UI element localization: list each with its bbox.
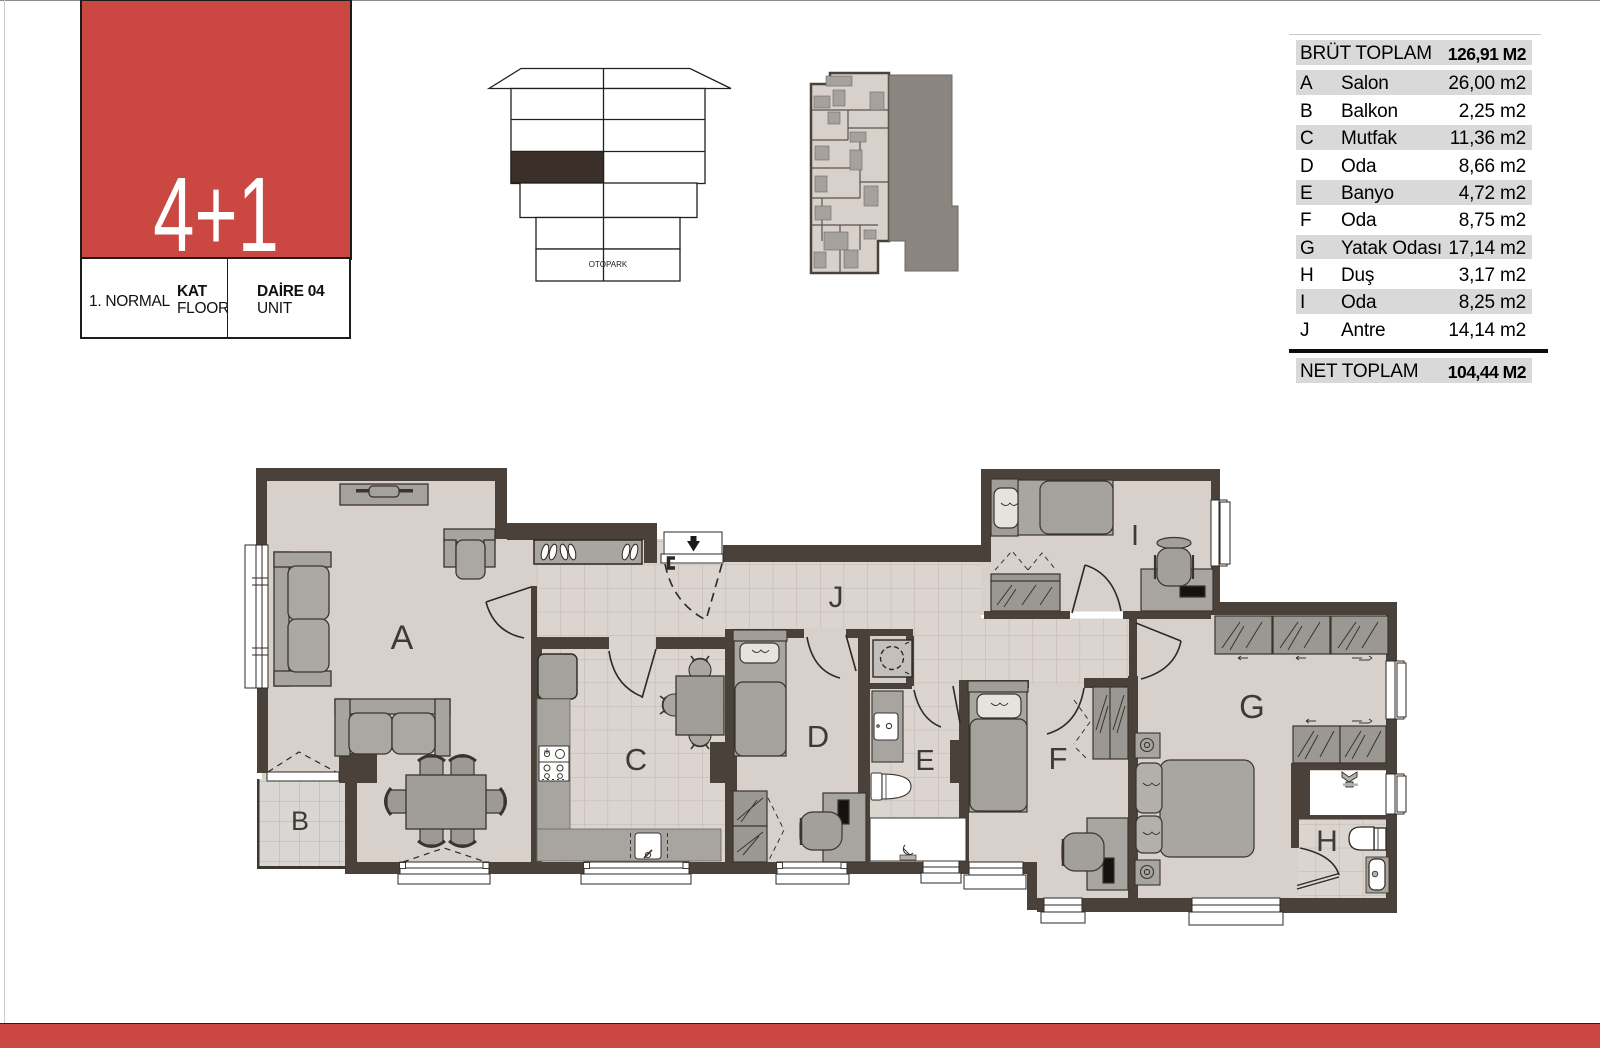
svg-text:A: A — [391, 619, 414, 657]
svg-text:D: D — [807, 719, 829, 754]
svg-text:E: E — [915, 745, 934, 777]
svg-text:J: J — [829, 581, 844, 614]
svg-text:B: B — [291, 806, 309, 836]
svg-text:OTOPARK: OTOPARK — [589, 260, 628, 269]
svg-text:H: H — [1316, 825, 1338, 858]
svg-text:I: I — [1131, 520, 1139, 552]
svg-text:C: C — [625, 742, 647, 777]
svg-text:G: G — [1239, 688, 1265, 725]
svg-text:F: F — [1049, 741, 1068, 776]
